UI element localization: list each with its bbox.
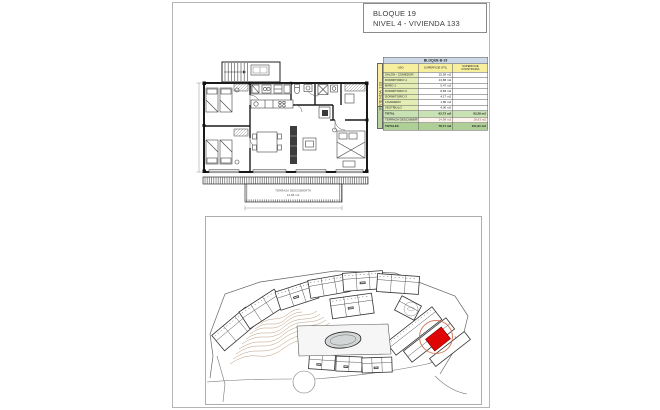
laundry bbox=[319, 107, 330, 118]
elevator-box bbox=[251, 65, 269, 75]
bedroom-2 bbox=[206, 129, 248, 164]
floor-plan: TERRAZA DESCUBIERTA 14,98 m2 bbox=[193, 50, 388, 220]
bedroom-1 bbox=[206, 84, 248, 112]
vivienda-label-text: VIVIENDA 133 bbox=[378, 82, 383, 111]
bathroom-1 bbox=[294, 85, 312, 94]
title-box: BLOQUE 19 NIVEL 4 - VIVIENDA 133 bbox=[363, 3, 487, 33]
stairwell bbox=[222, 62, 280, 82]
bathroom-2 bbox=[318, 85, 338, 95]
col-header-util: SUPERFICIE ÚTIL bbox=[418, 64, 453, 73]
cell-construida: 101,91 m2 bbox=[453, 123, 488, 131]
kitchen bbox=[251, 84, 293, 108]
cell-uso: TOTALES bbox=[383, 123, 418, 131]
terrace-area: 14,98 m2 bbox=[287, 193, 300, 197]
cell-util: 78,71 m2 bbox=[418, 123, 453, 131]
living-dining bbox=[253, 126, 317, 164]
col-header-construida: SUPERFICIE CONSTRUIDA bbox=[453, 64, 488, 73]
vivienda-side-label: VIVIENDA 133 bbox=[377, 63, 383, 129]
windows bbox=[209, 170, 363, 173]
bedroom-3 bbox=[333, 128, 366, 167]
level-dwelling-title: NIVEL 4 - VIVIENDA 133 bbox=[373, 19, 486, 29]
grand-total-row: TOTALES 78,71 m2 101,91 m2 bbox=[383, 123, 488, 131]
block-title: BLOQUE 19 bbox=[373, 9, 486, 19]
site-plan bbox=[205, 216, 482, 406]
area-table: BLOQUE B-19 USO SUPERFICIE ÚTIL SUPERFIC… bbox=[383, 57, 488, 131]
col-header-uso: USO bbox=[383, 64, 418, 73]
terrace-label: TERRAZA DESCUBIERTA bbox=[275, 189, 311, 193]
closet-room bbox=[345, 84, 365, 103]
